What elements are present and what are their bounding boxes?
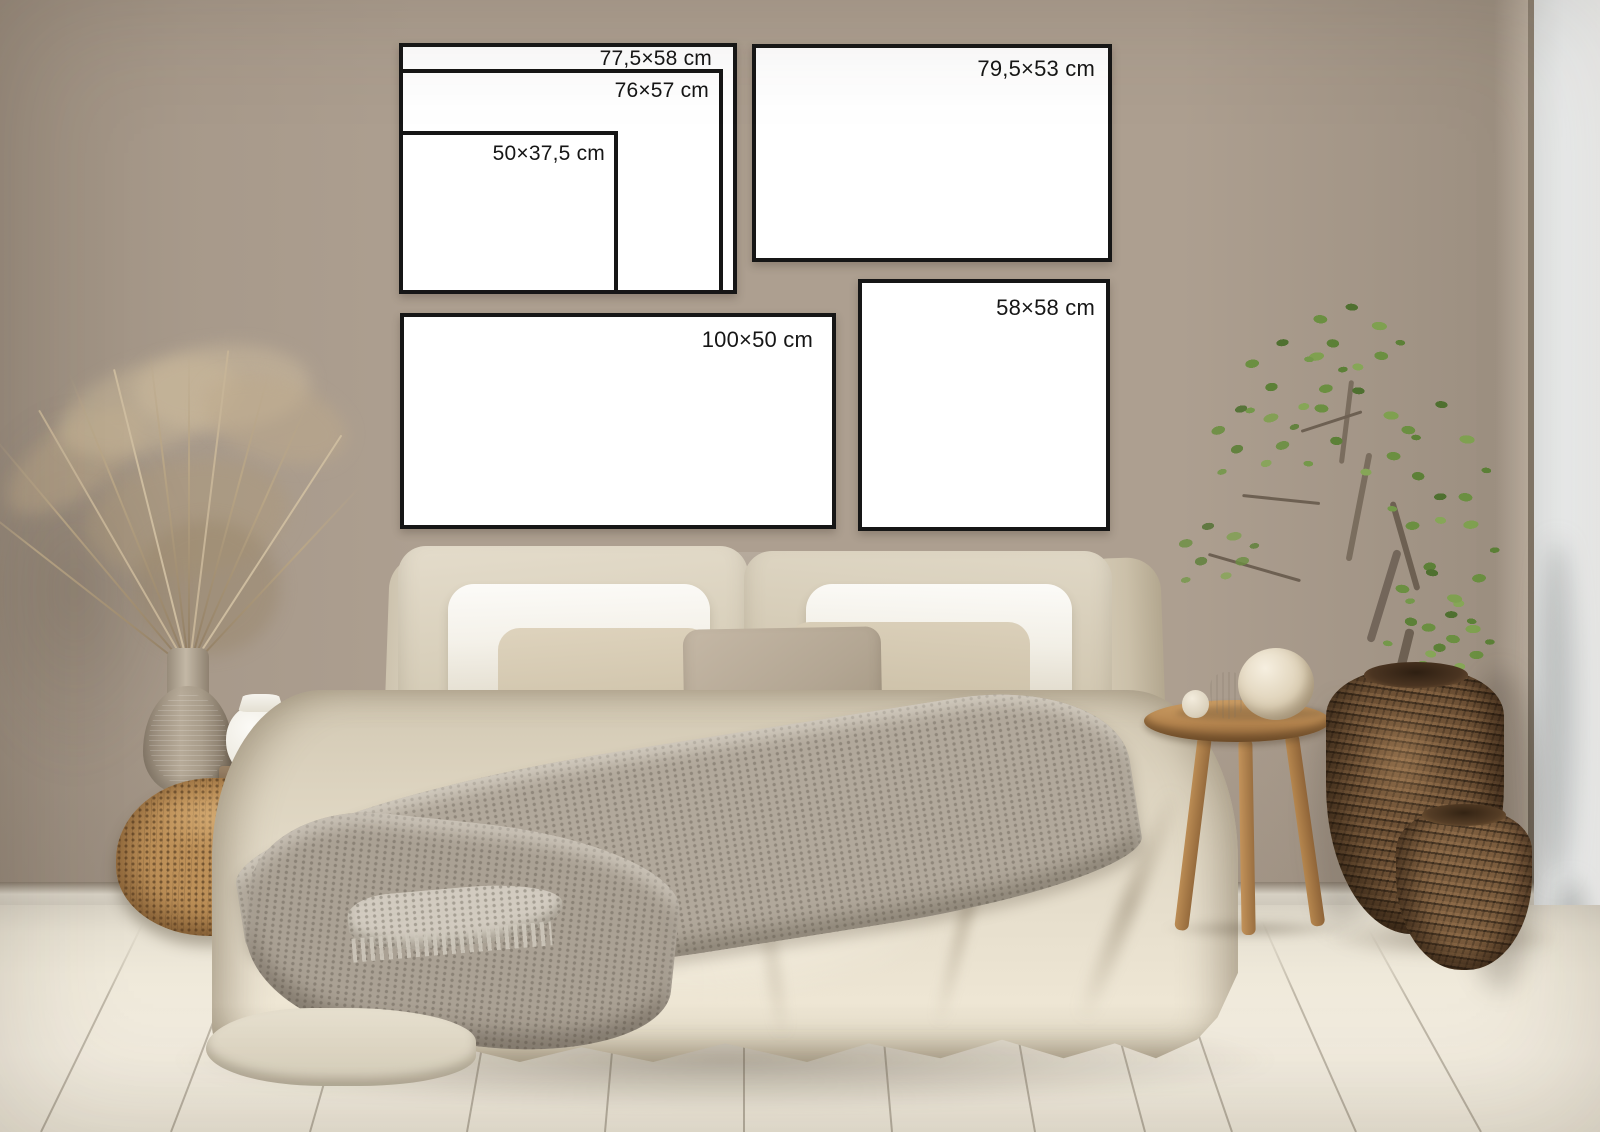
bedroom-frame-size-mockup-photo: 77,5×58 cm 76×57 cm 50×37,5 cm 79,5×53 c…	[0, 0, 1600, 1132]
egg-ornament	[1182, 690, 1209, 718]
bed	[0, 0, 1600, 1132]
duvet-hem-pool	[206, 1008, 476, 1086]
small-wicker-pot-rim	[1422, 804, 1506, 826]
ball-vase	[1238, 648, 1314, 720]
plant-leaf-cluster	[1299, 293, 1418, 384]
large-wicker-pot-rim	[1364, 662, 1468, 688]
large-wicker-pot-highlight	[1356, 700, 1446, 820]
